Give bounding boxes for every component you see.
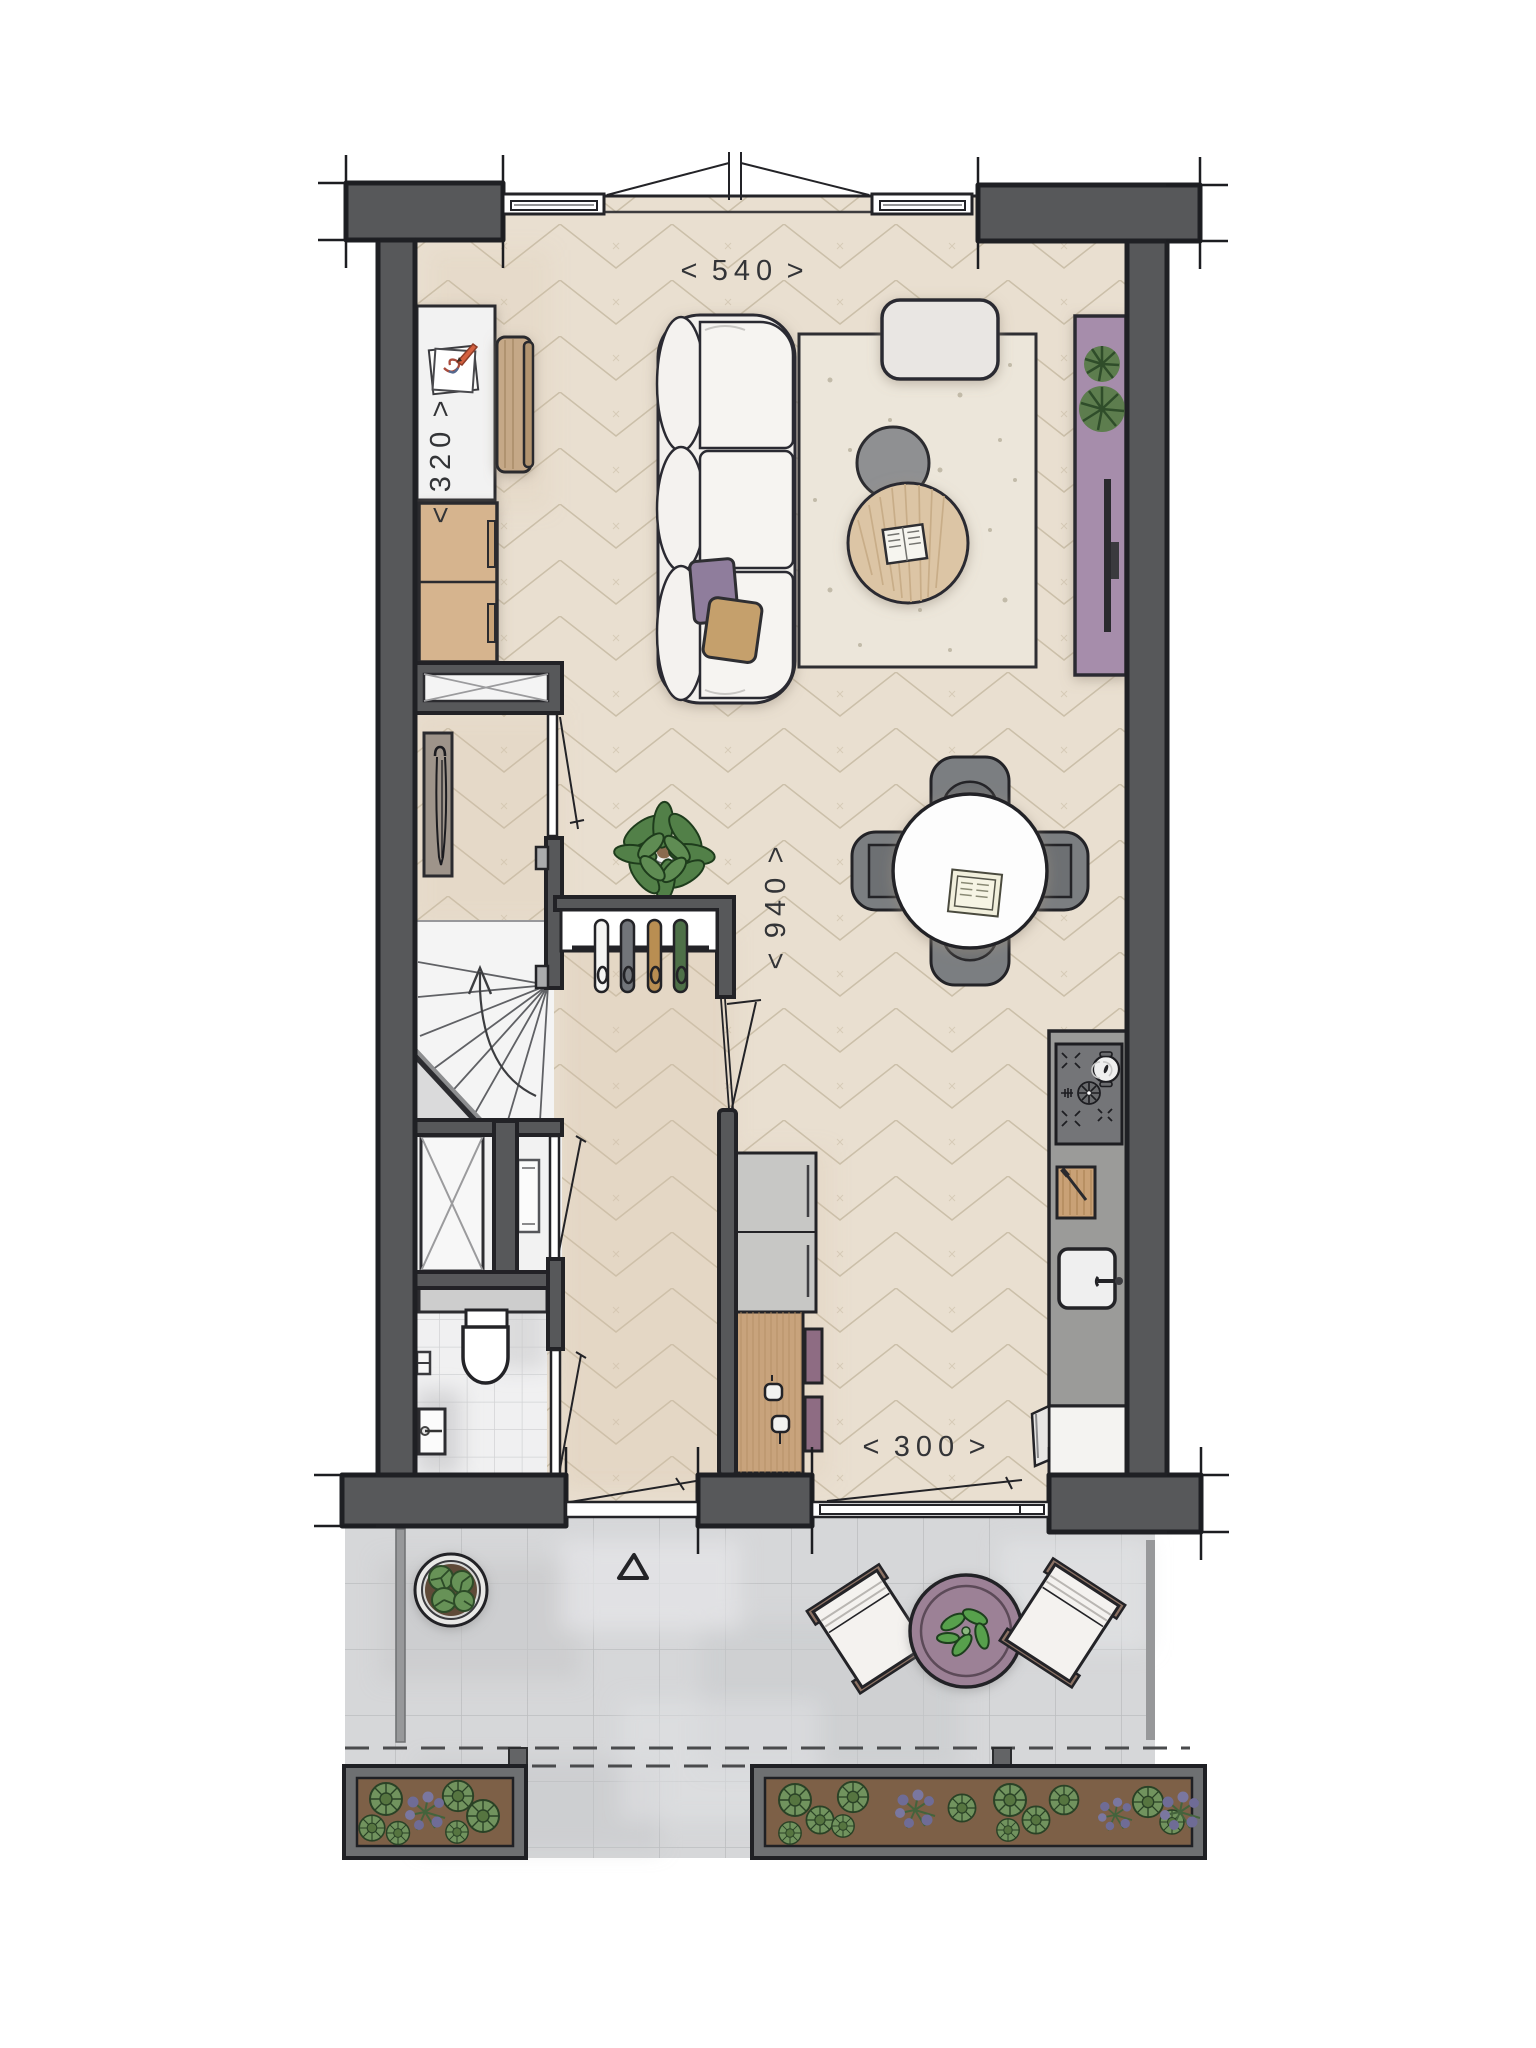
svg-text:< 540 >: < 540 > bbox=[680, 255, 809, 287]
svg-text:< 940 >: < 940 > bbox=[760, 840, 792, 969]
svg-text:< 320 >: < 320 > bbox=[425, 394, 457, 523]
svg-text:< 300 >: < 300 > bbox=[862, 1431, 991, 1463]
